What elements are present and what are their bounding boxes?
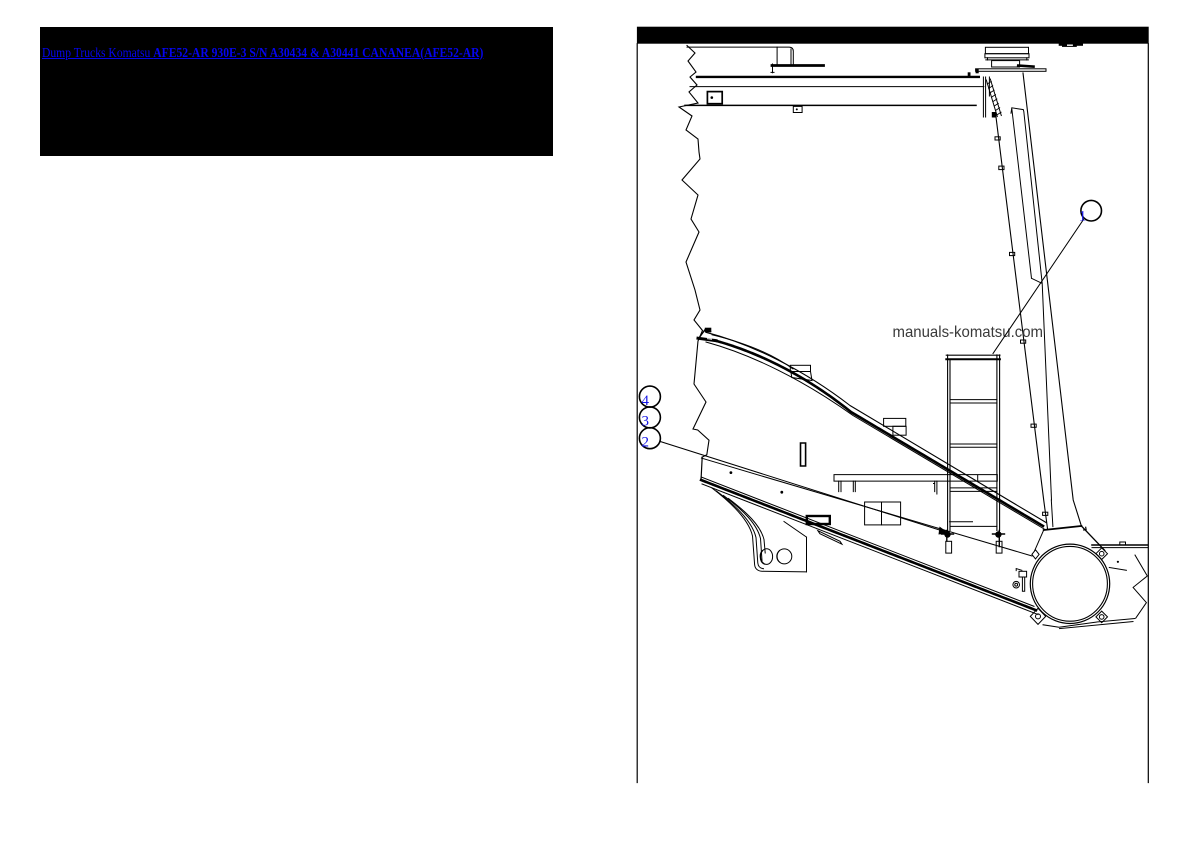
svg-text:2: 2 [642,434,650,450]
svg-text:1: 1 [1079,209,1087,225]
svg-text:manuals-komatsu.com: manuals-komatsu.com [893,324,1044,341]
